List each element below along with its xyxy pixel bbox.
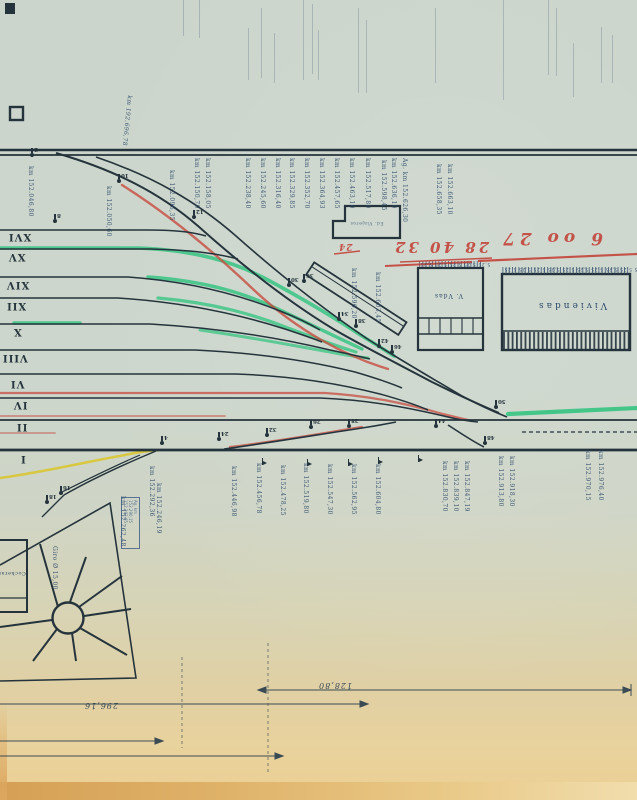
revision-stamp: Ag. km 152.290,15 152.293,65: [121, 497, 140, 549]
handwritten-note-small: 24: [338, 241, 353, 251]
stamp-line: 152.293,65: [123, 500, 128, 546]
signal-flag-icon: [307, 459, 308, 466]
tall-building-label: V. Vdas: [434, 292, 463, 299]
signal-flag-icon: [418, 455, 419, 462]
signal-flag-icon: [378, 457, 379, 464]
signal-flag-icon: [262, 458, 263, 465]
signal-flag-layer: [0, 0, 637, 800]
station-building-label: Ed. Viajeros: [350, 220, 384, 225]
stamp-line: 152.290,15: [128, 500, 133, 546]
handwritten-note-right: 6 oo 27: [498, 228, 603, 248]
tall-building-digits: 5,25 5,25 5,25 5,25 5,25: [420, 261, 490, 266]
shed-label: Cocheras: [0, 570, 26, 576]
scanned-track-plan: XVIXVXIVXIIXVIIIVIIVIII km 152.046,80km …: [0, 0, 637, 800]
viviendas-label: Viviendas: [536, 300, 607, 310]
signal-flag-icon: [348, 459, 349, 466]
handwritten-note-left: 28 40 32: [392, 238, 489, 256]
stamp-line: Ag. km: [133, 500, 138, 546]
dimension-128: 128,80: [318, 681, 352, 690]
viviendas-digits: 5,25 5,25 5,25 5,25 5,25 5,25 5,25 5,25 …: [504, 266, 637, 271]
dimension-296: 296,16: [84, 701, 118, 710]
